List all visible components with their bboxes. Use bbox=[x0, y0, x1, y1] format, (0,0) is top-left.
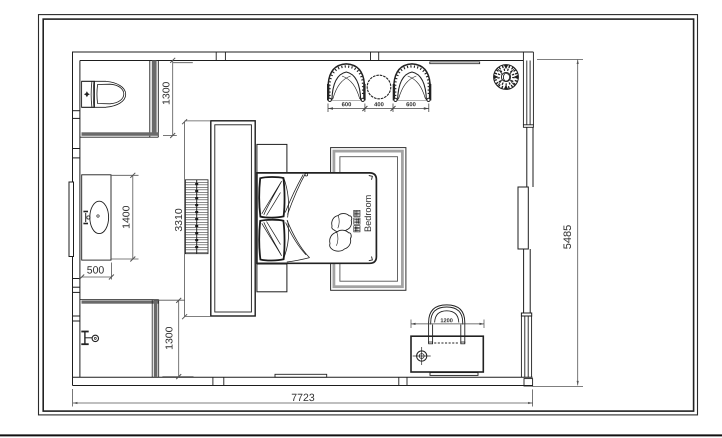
svg-text:1300: 1300 bbox=[164, 326, 176, 350]
svg-text:600: 600 bbox=[406, 102, 416, 108]
svg-text:600: 600 bbox=[342, 102, 352, 108]
svg-text:Bedroom: Bedroom bbox=[363, 194, 373, 232]
svg-text:500: 500 bbox=[87, 264, 105, 276]
svg-text:1300: 1300 bbox=[161, 81, 173, 105]
svg-text:5485: 5485 bbox=[562, 225, 574, 249]
svg-text:3310: 3310 bbox=[173, 208, 185, 232]
svg-text:7723: 7723 bbox=[291, 392, 315, 404]
svg-text:1400: 1400 bbox=[121, 205, 133, 229]
svg-text:400: 400 bbox=[374, 102, 384, 108]
svg-text:1200: 1200 bbox=[440, 318, 452, 324]
